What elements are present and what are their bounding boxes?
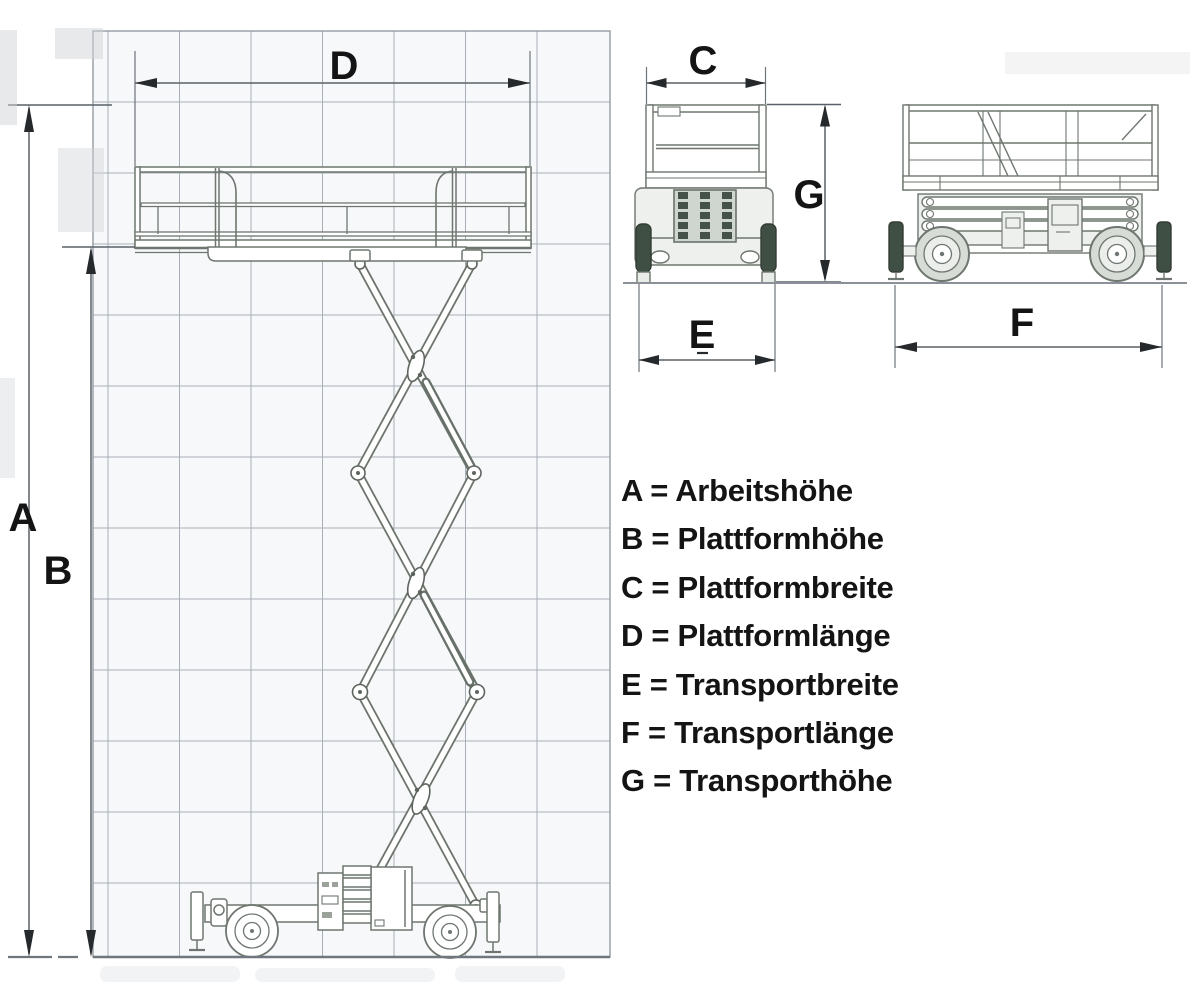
front-tire-right [761,224,776,272]
wheel-left [226,905,278,957]
front-scissor-stack [674,190,736,242]
dimension-label-g: G [793,173,824,217]
legend-item: G = Transporthöhe [621,757,1001,805]
side-wheel-left [915,227,969,281]
legend-item: F = Transportlänge [621,709,1001,757]
side-view-transport [888,105,1172,281]
side-basket [903,105,1158,190]
front-leg-right [762,272,775,283]
front-leg-left [637,272,650,283]
legend-item: E = Transportbreite [621,661,1001,709]
dimension-c: C [647,39,766,104]
side-wheel-right [1090,227,1144,281]
dimension-label-e: E [689,313,716,357]
dimension-e: E [639,284,775,372]
front-view-stowed [635,105,776,283]
legend-item: D = Plattformlänge [621,612,1001,660]
front-basket [646,105,766,188]
dimension-label-c: C [689,39,718,83]
wheel-right [424,906,476,958]
diagram-canvas: A B D [0,0,1200,990]
side-outrigger-left [888,222,904,279]
dimension-label-f: F [1010,301,1034,345]
extension-deck [208,247,466,261]
dimension-f: F [895,285,1162,368]
side-outrigger-right [1156,222,1172,279]
dimension-label-d: D [330,44,359,88]
legend-item: C = Plattformbreite [621,564,1001,612]
legend: A = Arbeitshöhe B = Plattformhöhe C = Pl… [621,467,1001,806]
dimension-label-a: A [9,496,38,540]
front-tire-left [636,224,651,272]
dimension-g: G [767,105,841,283]
dimension-drawing: A B D [0,0,1200,990]
legend-item: A = Arbeitshöhe [621,467,1001,515]
legend-item: B = Plattformhöhe [621,515,1001,563]
dimension-label-b: B [44,549,73,593]
engine-box [318,866,412,930]
